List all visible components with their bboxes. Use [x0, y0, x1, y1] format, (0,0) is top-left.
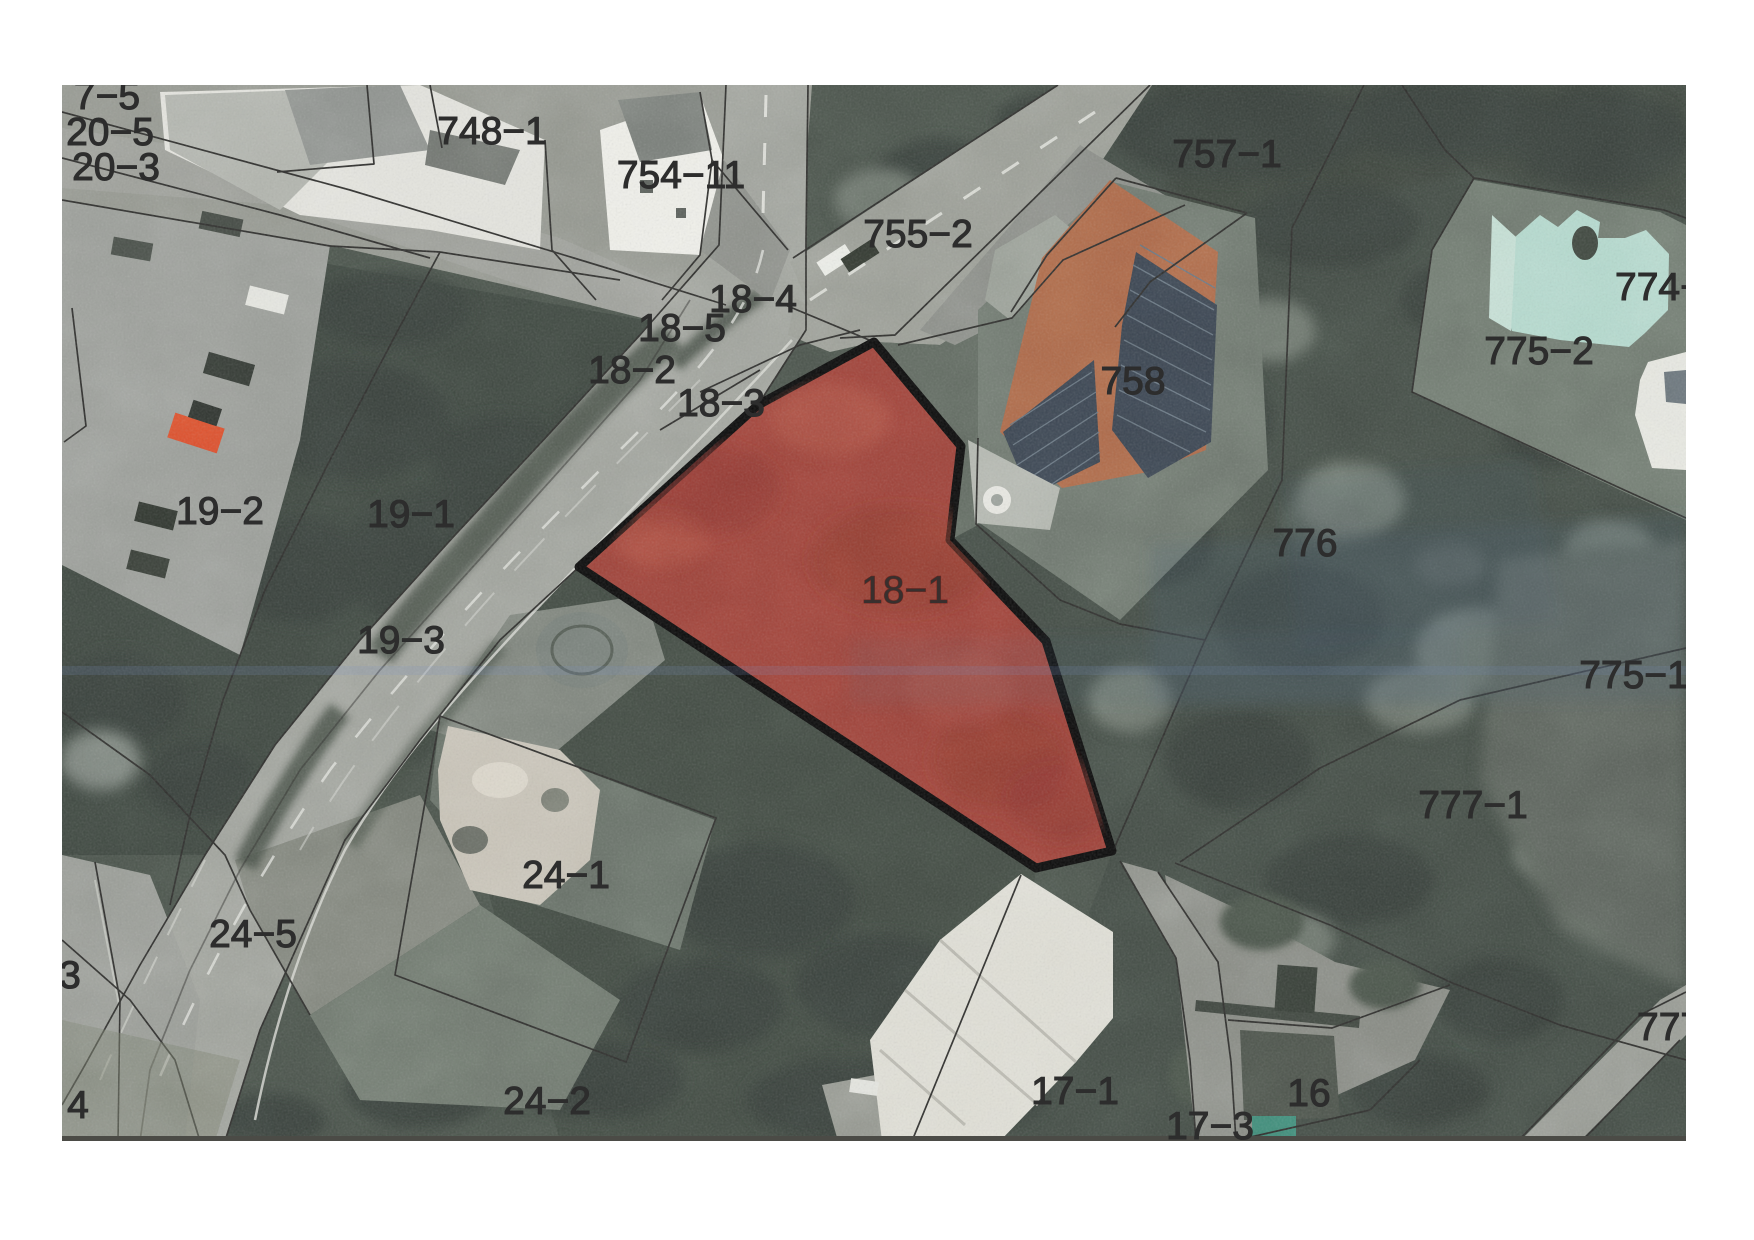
svg-text:17−1: 17−1 [1031, 1070, 1119, 1113]
svg-text:777−1: 777−1 [1418, 784, 1528, 827]
svg-text:16: 16 [1287, 1072, 1330, 1115]
svg-text:24−2: 24−2 [503, 1080, 591, 1123]
svg-text:18−1: 18−1 [861, 569, 949, 612]
svg-text:775−2: 775−2 [1484, 330, 1594, 373]
svg-text:757−1: 757−1 [1172, 133, 1282, 176]
svg-text:748−1: 748−1 [437, 110, 547, 153]
svg-text:19−2: 19−2 [176, 490, 264, 533]
svg-text:776: 776 [1272, 522, 1337, 565]
svg-text:4: 4 [67, 1084, 89, 1127]
svg-text:24−1: 24−1 [522, 854, 610, 897]
svg-text:20−3: 20−3 [72, 146, 160, 189]
svg-text:775−1: 775−1 [1579, 654, 1689, 697]
svg-text:18−3: 18−3 [677, 382, 765, 425]
svg-text:758: 758 [1100, 360, 1165, 403]
svg-text:19−1: 19−1 [367, 493, 455, 536]
svg-text:19−3: 19−3 [357, 619, 445, 662]
svg-text:755−2: 755−2 [863, 213, 973, 256]
svg-text:18−5: 18−5 [638, 307, 726, 350]
svg-text:754−11: 754−11 [617, 154, 745, 197]
svg-text:24−5: 24−5 [209, 913, 297, 956]
svg-text:18−2: 18−2 [588, 349, 676, 392]
svg-text:3: 3 [59, 954, 81, 997]
